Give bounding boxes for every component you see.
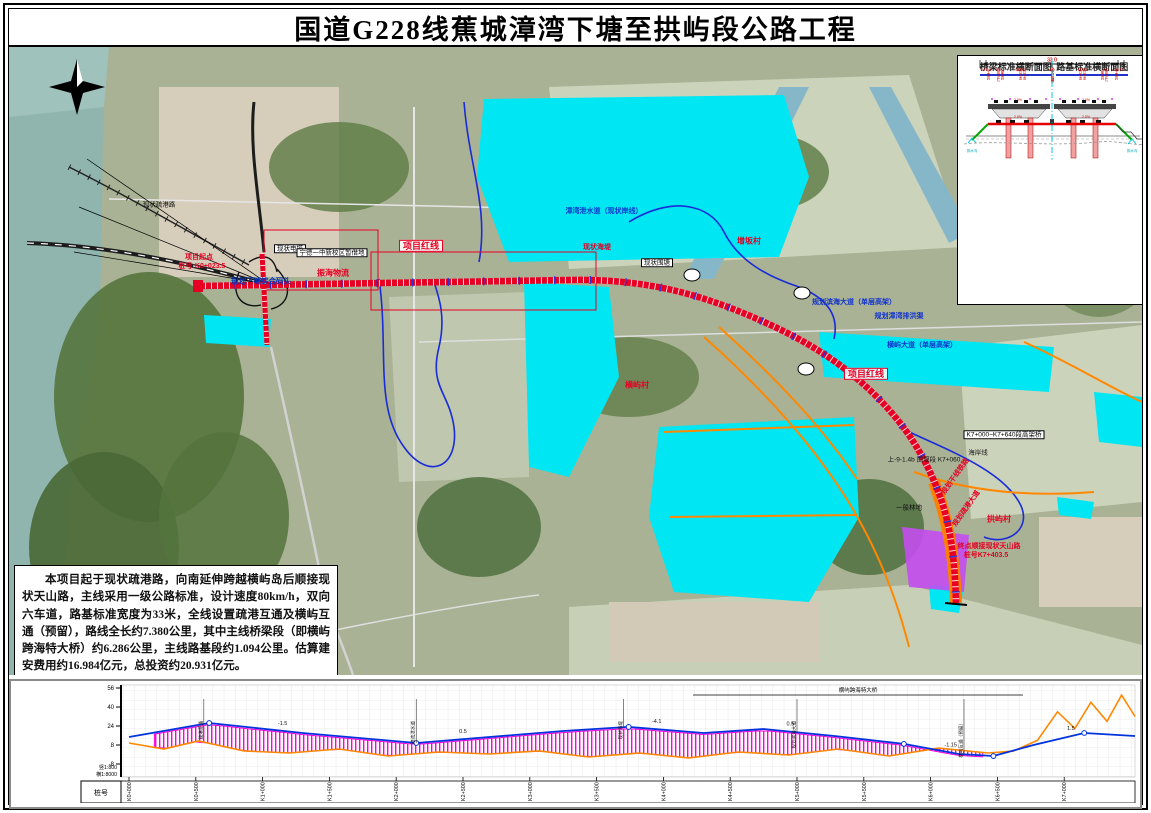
grade-label: 1.5: [1067, 726, 1075, 732]
map-label: 桩号:K0+023.5: [179, 263, 226, 271]
svg-text:2.0%: 2.0%: [1014, 115, 1022, 119]
vertical-curve-point: [991, 754, 996, 759]
map-label: 增坂村: [737, 236, 761, 245]
title-bar: 国道G228线蕉城漳湾下塘至拱屿段公路工程: [9, 9, 1142, 47]
svg-text:排水沟: 排水沟: [1127, 148, 1138, 153]
map-label: 横屿村: [625, 380, 649, 389]
station-label: K4+000: [661, 782, 667, 801]
map-label: 规划漳湾排洪渠: [875, 313, 924, 321]
station-label: K3+500: [595, 782, 601, 801]
station-label: K5+500: [862, 782, 868, 801]
map-label: 振海物流: [317, 268, 349, 277]
dimension-label: 3.0: [1104, 68, 1109, 72]
crossing-label: 漳湾泄水道: [410, 721, 417, 744]
station-label: K7+000: [1062, 782, 1068, 801]
grade-label: -1.5: [278, 721, 287, 727]
station-label: K2+500: [461, 782, 467, 801]
crossing-label: 疏港互通: [197, 721, 204, 740]
dimension-label: 硬路肩: [1100, 69, 1104, 80]
svg-text:排水沟: 排水沟: [967, 148, 978, 153]
station-row-box: [121, 781, 1135, 803]
elevation-tick: 56: [107, 686, 114, 692]
dimension-label: 行车道: [1022, 69, 1026, 80]
cross-section-panel: 桥梁标准横断面图 33.0 0.515.251.015.250.5防撞护栏行车道…: [957, 55, 1142, 305]
map-label: 桩号K7+403.5: [964, 552, 1009, 560]
dimension-label: 行车道: [1078, 69, 1082, 80]
crossing-label: 现状海堤: [617, 721, 624, 740]
map-label: 一般林地: [896, 504, 922, 511]
map-label: 现状围塘: [641, 258, 673, 267]
vertical-curve-point: [207, 721, 212, 726]
map-label: 宁德一中新校区暂借地: [297, 248, 368, 257]
elevation-tick: 40: [107, 705, 114, 711]
map-label: 拱屿村: [987, 514, 1011, 523]
map-label: 项目起点: [185, 254, 213, 262]
drawing-sheet: 国道G228线蕉城漳湾下塘至拱屿段公路工程: [0, 0, 1151, 813]
vertical-curve-point: [901, 742, 906, 747]
vertical-curve-point: [626, 725, 631, 730]
station-label: K1+500: [327, 782, 333, 801]
station-label: K0+000: [127, 782, 133, 801]
dimension-label: 硬路肩: [1000, 69, 1004, 80]
vertical-scale: 竖1:800: [99, 763, 117, 771]
roadbed-section-drawing: 33.0 0.753.011.253.011.253.00.75土路肩硬路肩行车…: [958, 56, 1142, 160]
crossing-label: 横屿互通（预留）: [958, 721, 965, 758]
profile-chart: -1.50.5-4.10.5-1.151.5疏港互通漳湾泄水道现状海堤规划滨海大…: [11, 681, 1140, 803]
map-label: 规划疏港大道: [952, 489, 983, 528]
route-map: 项目红线项目红线项目起点桩号:K0+023.5规划下塘综合码头现状电塔宁德一中新…: [9, 47, 1142, 675]
svg-text:2.0%: 2.0%: [1082, 115, 1090, 119]
map-label: 终点顺接现状天山路: [958, 543, 1021, 551]
elevation-tick: 24: [107, 724, 114, 730]
dimension-label: 土路肩: [986, 69, 990, 80]
grade-label: 0.5: [459, 729, 467, 735]
station-label: K0+500: [194, 782, 200, 801]
grade-label: -1.15: [944, 743, 957, 749]
station-label: K6+500: [995, 782, 1001, 801]
station-label: K3+000: [528, 782, 534, 801]
map-label: 项目红线: [399, 240, 443, 252]
project-description: 本项目起于现状疏港路，向南延伸跨越横屿岛后顺接现状天山路，主线采用一级公路标准，…: [14, 565, 338, 675]
map-label: 规划滨海大道（单层高架）: [812, 299, 896, 307]
map-label: 现状疏港路: [143, 201, 176, 208]
map-label: 上-9-1.4b 围堰段 K7+060: [888, 456, 961, 463]
station-label: K1+000: [261, 782, 267, 801]
map-label: 海岸线: [968, 449, 988, 456]
map-label: 漳湾泄水道（现状岸线）: [566, 208, 643, 216]
map-label: 项目红线: [844, 368, 888, 380]
bridge-annotation: 横屿跨海特大桥: [839, 686, 878, 694]
station-label: K5+000: [795, 782, 801, 801]
dimension-label: 土路肩: [1114, 69, 1118, 80]
station-label: K2+000: [394, 782, 400, 801]
station-row-label: 桩号: [94, 788, 108, 797]
map-label: K7+000~K7+640段高架桥: [964, 430, 1045, 439]
station-label: K4+500: [728, 782, 734, 801]
crossing-label: 规划滨海大道: [791, 721, 798, 749]
horizontal-scale: 横1:8000: [96, 770, 117, 778]
vertical-curve-point: [1082, 731, 1087, 736]
map-label: 横屿大道（单层高架）: [887, 342, 957, 350]
map-label: 现状海堤: [583, 244, 611, 252]
map-label: 规划下塘综合码头: [231, 278, 291, 287]
grade-label: -4.1: [652, 719, 661, 725]
station-label: K6+000: [929, 782, 935, 801]
profile-panel: -1.50.5-4.10.5-1.151.5疏港互通漳湾泄水道现状海堤规划滨海大…: [9, 679, 1142, 809]
page-title: 国道G228线蕉城漳湾下塘至拱屿段公路工程: [294, 8, 857, 47]
elevation-tick: 8: [111, 743, 115, 749]
